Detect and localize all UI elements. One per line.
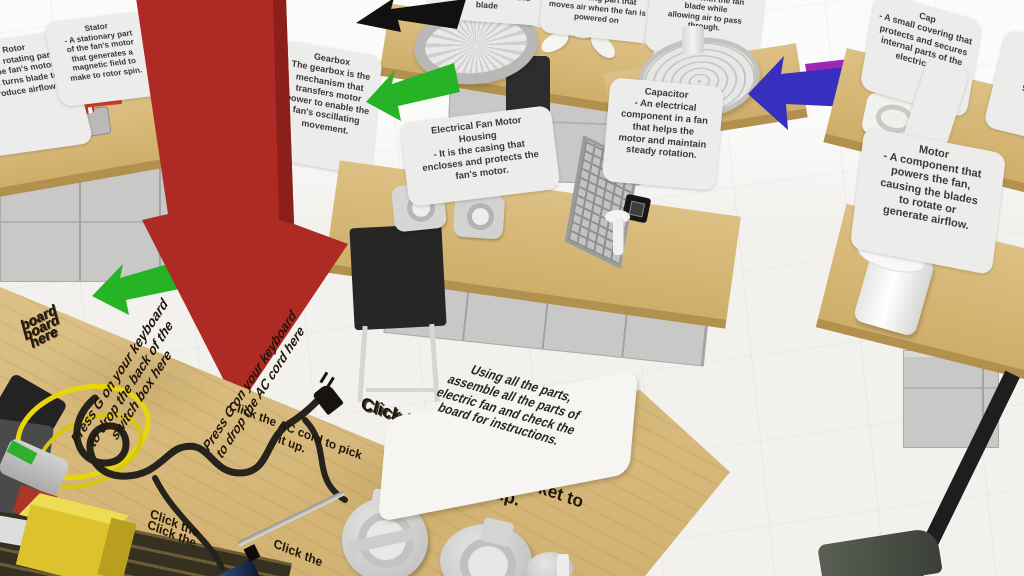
bolt-part[interactable]	[604, 210, 632, 258]
label-partial-right-body: su	[999, 81, 1024, 95]
label-fan-guard-body: that prevents contact with the fan blade…	[653, 0, 759, 37]
fan-cage-hub	[682, 26, 704, 54]
label-capacitor-body: - An electrical component in a fan that …	[610, 96, 717, 164]
label-blade-body: - A rotating part that moves air when th…	[546, 0, 649, 29]
chair	[349, 224, 446, 331]
black-arrow	[356, 0, 468, 32]
label-capacitor: Capacitor - An electrical component in a…	[602, 77, 725, 191]
game-scene: Rotor - The rotating part of the fan's m…	[0, 0, 1024, 576]
green-arrow	[364, 58, 460, 122]
